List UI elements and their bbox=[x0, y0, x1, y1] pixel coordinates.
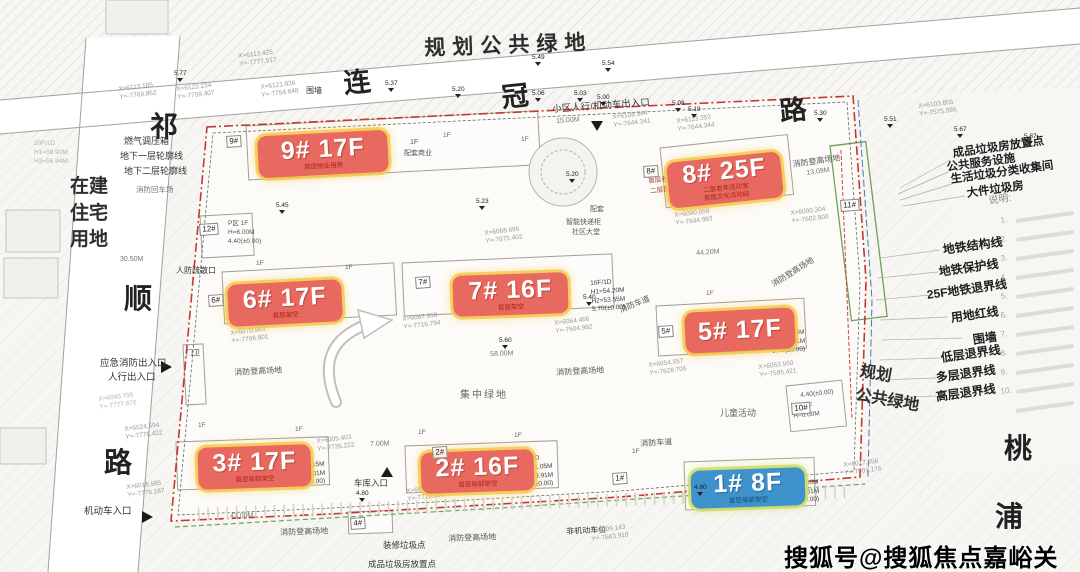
building-number-tag-9: 9# bbox=[226, 135, 242, 148]
porch-1f-marker-2: 1F bbox=[256, 260, 264, 268]
note-item-number-2: 2. bbox=[1000, 234, 1008, 244]
spot-elevation-value: 4.80 bbox=[356, 490, 369, 497]
text-dim-62: 43.00M bbox=[230, 512, 254, 521]
text-fac-37: 儿童活动 bbox=[720, 408, 756, 419]
spot-elevation-marker-icon bbox=[605, 68, 611, 72]
building-badge-6: 6# 17F首层架空 bbox=[227, 279, 343, 327]
spot-elevation-7: 5.00 bbox=[597, 94, 610, 106]
building-number-tag-10: 10# bbox=[791, 402, 811, 416]
text-fac-51: 消防登高场地 bbox=[770, 256, 816, 290]
text-coord-87: X=6053.560 Y=-7595.421 bbox=[758, 359, 797, 380]
text-fac-36: 集中绿地 bbox=[460, 390, 508, 402]
spot-elevation-value: 5.67 bbox=[954, 126, 967, 133]
building-badge-3: 3# 17F首层局部架空 bbox=[197, 444, 311, 490]
text-dim-57: 44.20M bbox=[696, 248, 720, 258]
building-badge-6-subtext: 首层架空 bbox=[272, 311, 298, 320]
text-fac-49: 消防车道 bbox=[640, 437, 672, 448]
building-badge-6-label: 6# 17F bbox=[242, 284, 327, 313]
building-badge-3-subtext: 首层局部架空 bbox=[235, 475, 274, 484]
building-number-tag-2: 2# bbox=[432, 446, 448, 459]
spot-elevation-marker-icon bbox=[697, 492, 703, 496]
note-item-text-placeholder-4 bbox=[1016, 268, 1074, 280]
spot-elevation-12: 5.67 bbox=[954, 126, 967, 138]
spot-elevation-marker-icon bbox=[586, 302, 592, 306]
spot-elevation-9: 5.19 bbox=[688, 106, 701, 118]
text-fac-53: 消防登高场地 bbox=[448, 532, 496, 543]
spot-elevation-18: 5.60 bbox=[499, 337, 512, 349]
text-fac-40: 配套 bbox=[590, 206, 604, 214]
building-badge-7: 7# 16F首层架空 bbox=[452, 272, 568, 317]
porch-1f-marker-3: 1F bbox=[345, 264, 353, 272]
spot-elevation-1: 5.37 bbox=[385, 80, 398, 92]
spot-elevation-marker-icon bbox=[887, 124, 893, 128]
text-coord-79: X=6103.855 Y=-7575.595 bbox=[918, 98, 957, 119]
note-item-text-placeholder-3 bbox=[1016, 249, 1074, 261]
text-fac-30: 人防疏散口 bbox=[176, 266, 216, 276]
road-qishun-char-shun: 顺 bbox=[124, 282, 152, 316]
text-coord-81: X=6090.304 Y=-7602.800 bbox=[790, 205, 829, 226]
text-coord-73: X=6113.425 Y=-7777.517 bbox=[238, 48, 277, 69]
note-item-text-placeholder-8 bbox=[1016, 344, 1074, 356]
text-coord-90: X=6018.585 Y=-7776.167 bbox=[126, 479, 165, 500]
text-coord-93: X=6009.143 Y=-7663.918 bbox=[590, 523, 629, 544]
text-fac-45: 装修垃圾点 bbox=[383, 540, 426, 550]
text-fac-52: 消防登高场地 bbox=[280, 526, 328, 537]
spot-elevation-marker-icon bbox=[388, 88, 394, 92]
spot-elevation-11: 5.51 bbox=[884, 116, 897, 128]
building-number-tag-1: 1# bbox=[612, 472, 628, 485]
spot-elevation-2: 5.49 bbox=[532, 54, 545, 66]
text-fac-25: 围墙 bbox=[306, 86, 322, 96]
text-coord-82: X=6068.695 Y=-7675.402 bbox=[484, 225, 523, 246]
text-fac-27: 地下一层轮廓线 bbox=[120, 151, 183, 162]
note-item-number-1: 1. bbox=[1000, 215, 1008, 225]
spot-elevation-marker-icon bbox=[359, 498, 365, 502]
spot-elevation-marker-icon bbox=[479, 206, 485, 210]
road-taopu-char-pu: 浦 bbox=[995, 500, 1023, 534]
road-taopu-char-tao: 桃 bbox=[1004, 432, 1032, 466]
note-item-number-6: 6. bbox=[1000, 310, 1008, 320]
spot-elevation-19: 4.80 bbox=[356, 490, 369, 502]
text-fac-29: 消防回车场 bbox=[136, 185, 174, 194]
spot-elevation-6: 5.03 bbox=[574, 90, 587, 102]
note-item-number-3: 3. bbox=[1000, 253, 1008, 263]
text-coord-80: X=6090.059 Y=-7644.983 bbox=[674, 207, 713, 228]
spot-elevation-value: 5.37 bbox=[385, 80, 398, 87]
text-coord-91: X=6017.656 Y=-7591.176 bbox=[843, 457, 882, 478]
porch-1f-marker-1: 1F bbox=[521, 136, 529, 144]
text-coord-74: X=6113.185 Y=-7769.862 bbox=[118, 81, 157, 102]
text-dim-60: 15.00M bbox=[556, 116, 580, 126]
text-fac-26: 燃气调压箱 bbox=[124, 136, 169, 147]
note-item-number-10: 10. bbox=[1000, 385, 1012, 395]
spot-elevation-value: 5.20 bbox=[566, 171, 579, 178]
building-number-tag-4: 4# bbox=[350, 517, 366, 530]
text-coord-88: X=6045.795 Y=-7777.876 bbox=[98, 391, 137, 412]
building-number-tag-7: 7# bbox=[415, 276, 431, 289]
road-lianguan-char-lu: 路 bbox=[778, 93, 808, 128]
spot-elevation-15: 5.23 bbox=[476, 198, 489, 210]
text-fac-39: 社区大堂 bbox=[572, 229, 600, 237]
watermark-sohu: 搜狐号@搜狐焦点嘉峪关站 bbox=[784, 538, 1080, 572]
spot-elevation-13: 5.87 bbox=[1024, 133, 1037, 145]
note-item-number-5: 5. bbox=[1000, 291, 1008, 301]
building-badge-7-subtext: 首层架空 bbox=[498, 303, 524, 312]
text-coord-83: X=6070.563 Y=-7766.801 bbox=[230, 325, 269, 346]
building-badge-1-label: 1# 8F bbox=[713, 470, 783, 497]
note-item-text-placeholder-5 bbox=[1016, 287, 1074, 299]
spot-elevation-value: 5.00 bbox=[597, 94, 610, 101]
spot-elevation-value: 5.45 bbox=[276, 202, 289, 209]
text-dim-63: 7.00M bbox=[370, 440, 390, 449]
text-dim-61: 58.00M bbox=[490, 350, 514, 359]
legend-land-red-line: 用地红线 bbox=[950, 304, 1000, 325]
text-coord-75: X=6122.234 Y=-7759.407 bbox=[176, 81, 215, 102]
spot-elevation-marker-icon bbox=[569, 179, 575, 183]
spot-elevation-5: 5.06 bbox=[532, 90, 545, 102]
text-spec-72: 20F/1D H1=59.90M H2=56.94M bbox=[34, 140, 68, 166]
text-fac-46: 成品垃圾房放置点 bbox=[368, 559, 436, 569]
building-badge-1-subtext: 首层局部架空 bbox=[729, 496, 768, 505]
text-fac-33: 人行出入口 bbox=[108, 372, 156, 383]
text-dim-59: 30.50M bbox=[120, 256, 143, 264]
note-item-text-placeholder-tail bbox=[1016, 401, 1074, 413]
legend-metro-structure-line: 地铁结构线 bbox=[942, 235, 1003, 258]
label-green-space-right: 规划 公共绿地 bbox=[854, 360, 925, 418]
text-fac-32: 应急消防出入口 bbox=[100, 358, 167, 369]
building-badge-9-label: 9# 17F bbox=[280, 135, 365, 164]
text-coord-76: X=6121.936 Y=-7754.648 bbox=[260, 79, 299, 100]
spot-elevation-10: 5.30 bbox=[814, 110, 827, 122]
text-fac-34: 机动车入口 bbox=[84, 506, 132, 517]
notes-header: 说明: bbox=[988, 193, 1012, 208]
building-number-tag-12: 12# bbox=[199, 223, 219, 237]
spot-elevation-value: 5.08 bbox=[672, 100, 685, 107]
text-coord-86: X=6054.557 Y=-7628.705 bbox=[648, 357, 687, 378]
text-fac-42: 配套商业 bbox=[404, 150, 432, 158]
building-badge-1: 1# 8F首层局部架空 bbox=[690, 467, 805, 509]
text-fac-41: 1F bbox=[410, 139, 418, 147]
text-fac-31: 门卫 bbox=[186, 350, 200, 358]
legend-25f-metro-setback-line: 25F地铁退界线 bbox=[926, 277, 1008, 302]
spot-elevation-marker-icon bbox=[177, 78, 183, 82]
note-item-number-9: 9. bbox=[1000, 367, 1008, 377]
building-badge-8-subtext: 二层老年活动室 首层文化活动站 bbox=[703, 183, 750, 203]
spot-elevation-marker-icon bbox=[577, 98, 583, 102]
porch-1f-marker-8: 1F bbox=[706, 290, 714, 298]
spot-elevation-17: 5.40 bbox=[583, 294, 596, 306]
spot-elevation-4: 5.20 bbox=[452, 86, 465, 98]
note-item-text-placeholder-6 bbox=[1016, 306, 1074, 318]
spot-elevation-marker-icon bbox=[502, 345, 508, 349]
building-number-tag-8: 8# bbox=[643, 165, 659, 178]
building-badge-5: 5# 17F bbox=[684, 307, 796, 354]
legend-highrise-setback: 高层退界线 bbox=[935, 382, 996, 405]
spot-elevation-marker-icon bbox=[535, 98, 541, 102]
text-dim-58: 13.09M bbox=[806, 167, 830, 179]
note-item-text-placeholder-2 bbox=[1016, 230, 1074, 242]
building-badge-2-subtext: 首层局部架空 bbox=[458, 480, 497, 489]
text-fac-35: 车库入口 bbox=[354, 478, 388, 488]
spot-elevation-marker-icon bbox=[279, 210, 285, 214]
spot-elevation-value: 5.87 bbox=[1024, 133, 1037, 140]
text-spec-70: 4.40(±0.00) bbox=[800, 389, 834, 401]
spot-elevation-marker-icon bbox=[600, 102, 606, 106]
spot-elevation-marker-icon bbox=[455, 94, 461, 98]
road-lianguan-char-guan: 冠 bbox=[500, 79, 530, 114]
building-badge-8: 8# 25F二层老年活动室 首层文化活动站 bbox=[666, 151, 784, 209]
spot-elevation-value: 5.51 bbox=[884, 116, 897, 123]
text-coord-85: X=6064.466 Y=-7604.982 bbox=[554, 315, 593, 336]
note-item-text-placeholder-10 bbox=[1016, 382, 1074, 394]
building-number-tag-11: 11# bbox=[840, 199, 860, 213]
building-badge-8-label: 8# 25F bbox=[681, 155, 767, 189]
building-badge-5-label: 5# 17F bbox=[697, 316, 782, 345]
spot-elevation-marker-icon bbox=[817, 118, 823, 122]
note-item-number-7: 7. bbox=[1000, 329, 1008, 339]
note-item-number-8: 8. bbox=[1000, 348, 1008, 358]
text-coord-94: X=6005.403 Y=-7735.222 bbox=[316, 433, 355, 454]
text-fac-28: 地下二层轮廓线 bbox=[124, 166, 187, 177]
porch-1f-marker-0: 1F bbox=[443, 132, 451, 140]
text-fac-38: 智能快递柜 bbox=[566, 219, 601, 227]
spot-elevation-20: 4.80 bbox=[694, 484, 707, 496]
porch-1f-marker-6: 1F bbox=[418, 429, 426, 437]
spot-elevation-value: 5.20 bbox=[452, 86, 465, 93]
text-coord-77: X=6108.544 Y=-7644.341 bbox=[612, 109, 651, 130]
porch-1f-marker-9: 1F bbox=[632, 448, 640, 456]
note-item-text-placeholder-9 bbox=[1016, 363, 1074, 375]
text-fac-55: 消防登高场地 bbox=[234, 365, 282, 377]
note-item-text-placeholder-7 bbox=[1016, 325, 1074, 337]
spot-elevation-value: 5.03 bbox=[574, 90, 587, 97]
road-lianguan-char-lian: 连 bbox=[342, 65, 372, 100]
spot-elevation-16: 5.45 bbox=[276, 202, 289, 214]
building-number-tag-5: 5# bbox=[658, 325, 674, 338]
text-coord-84: X=6067.958 Y=-7716.794 bbox=[402, 311, 441, 332]
spot-elevation-value: 5.19 bbox=[688, 106, 701, 113]
annotation-layer: 规划公共绿地连冠路祁顺路桃浦在建 住宅 用地规划 公共绿地成品垃圾房放置点公共服… bbox=[0, 0, 1080, 572]
spot-elevation-14: 5.20 bbox=[566, 171, 579, 183]
note-item-text-placeholder-1 bbox=[1016, 211, 1074, 223]
spot-elevation-8: 5.08 bbox=[672, 100, 685, 112]
building-badge-3-label: 3# 17F bbox=[212, 449, 297, 477]
spot-elevation-marker-icon bbox=[957, 134, 963, 138]
spot-elevation-value: 5.49 bbox=[532, 54, 545, 61]
spot-elevation-marker-icon bbox=[691, 114, 697, 118]
label-under-construction-residential: 在建 住宅 用地 bbox=[70, 174, 108, 254]
road-qishun-char-lu: 路 bbox=[104, 446, 132, 480]
site-plan-canvas: 规划公共绿地连冠路祁顺路桃浦在建 住宅 用地规划 公共绿地成品垃圾房放置点公共服… bbox=[0, 0, 1080, 572]
building-badge-9-subtext: 首层物业用房 bbox=[304, 162, 343, 172]
spot-elevation-value: 5.30 bbox=[814, 110, 827, 117]
building-badge-9: 9# 17F首层物业用房 bbox=[257, 130, 389, 179]
spot-elevation-value: 4.80 bbox=[694, 484, 707, 491]
porch-1f-marker-5: 1F bbox=[295, 426, 303, 434]
spot-elevation-marker-icon bbox=[675, 108, 681, 112]
spot-elevation-value: 5.54 bbox=[602, 60, 615, 67]
text-coord-89: X=6024.594 Y=-7776.422 bbox=[124, 421, 163, 442]
porch-1f-marker-7: 1F bbox=[514, 432, 522, 440]
text-fac-54: 消防登高场地 bbox=[792, 153, 841, 169]
spot-elevation-0: 5.77 bbox=[174, 70, 187, 82]
text-fac-50: 消防登高场地 bbox=[556, 365, 604, 377]
spot-elevation-value: 5.77 bbox=[174, 70, 187, 77]
legend-metro-protection-line: 地铁保护线 bbox=[938, 257, 999, 280]
porch-1f-marker-4: 1F bbox=[198, 422, 206, 430]
text-spec-69: P区 1F H=6.00M 4.40(±0.00) bbox=[228, 220, 261, 246]
spot-elevation-value: 5.40 bbox=[583, 294, 596, 301]
building-number-tag-6: 6# bbox=[208, 294, 224, 307]
spot-elevation-marker-icon bbox=[535, 62, 541, 66]
building-badge-7-label: 7# 16F bbox=[468, 276, 553, 304]
spot-elevation-3: 5.54 bbox=[602, 60, 615, 72]
spot-elevation-marker-icon bbox=[1027, 141, 1033, 145]
label-green-space-top: 规划公共绿地 bbox=[424, 30, 593, 61]
note-item-number-4: 4. bbox=[1000, 272, 1008, 282]
spot-elevation-value: 5.06 bbox=[532, 90, 545, 97]
spot-elevation-value: 5.60 bbox=[499, 337, 512, 344]
spot-elevation-value: 5.23 bbox=[476, 198, 489, 205]
